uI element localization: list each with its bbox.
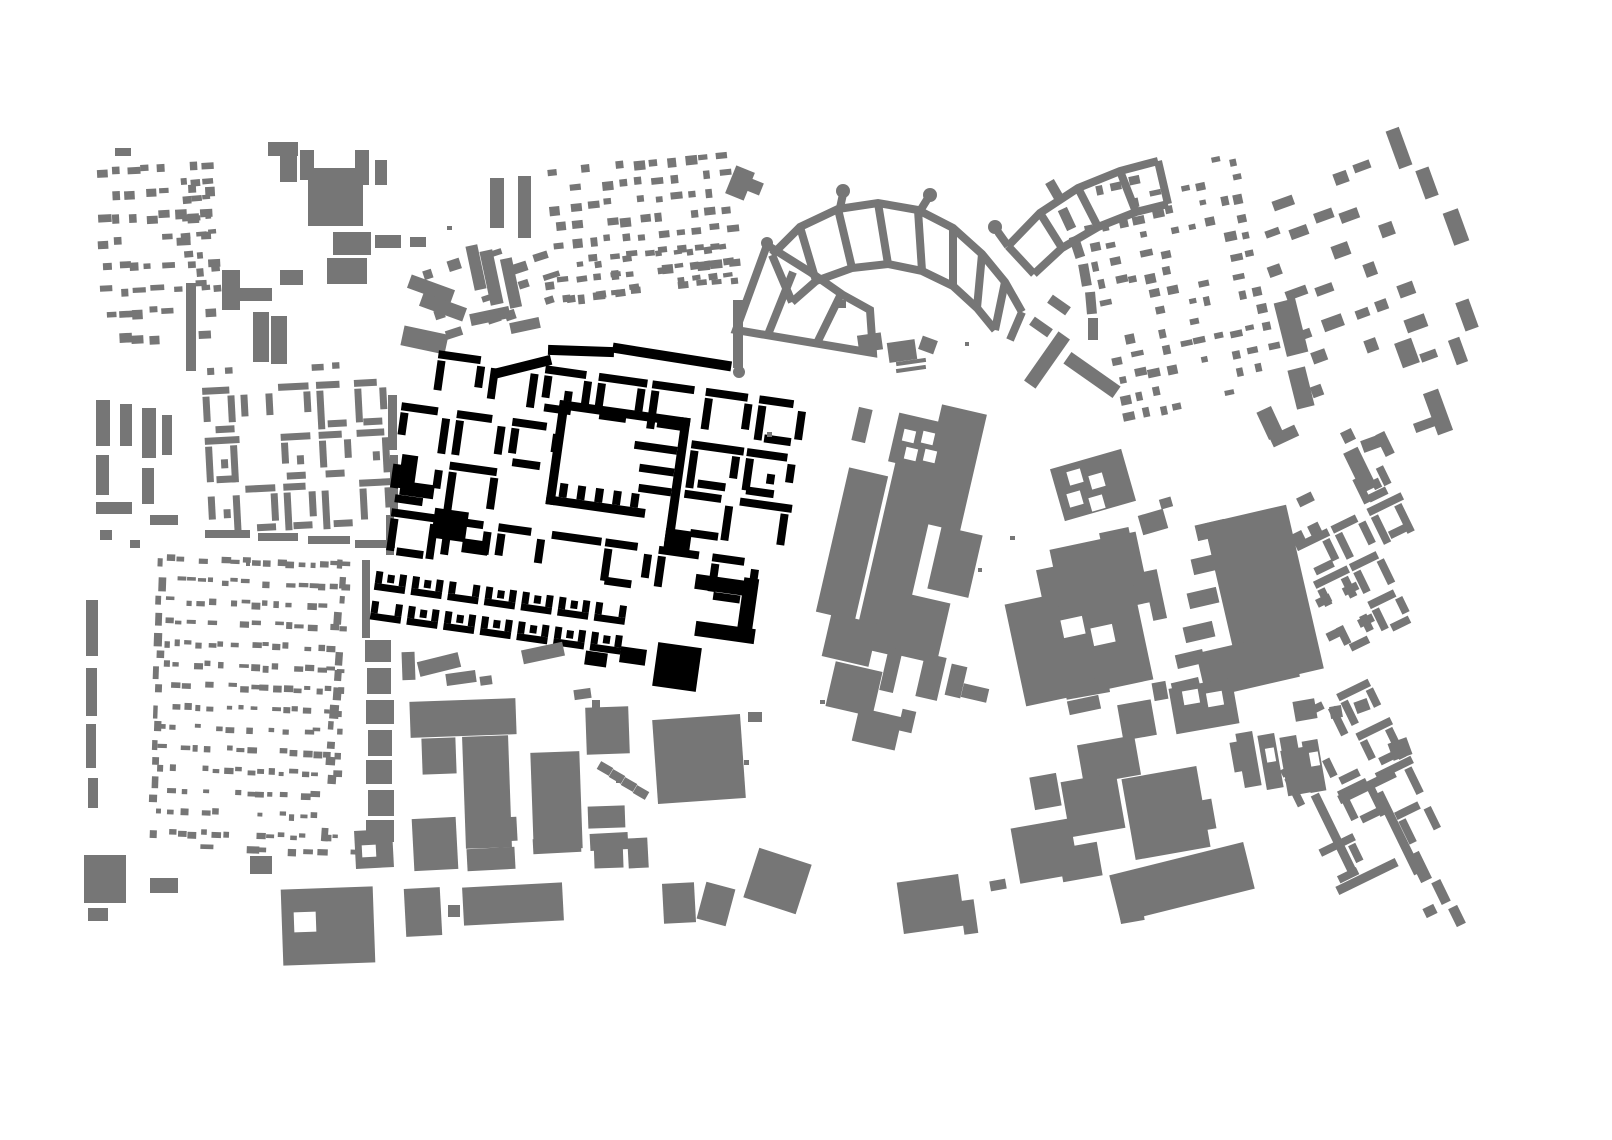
bottom-band-buildings <box>281 817 979 966</box>
allotment-left-edge <box>147 558 168 838</box>
topleft-long-bar <box>186 283 196 371</box>
figure-ground-plan <box>0 0 1612 1140</box>
leftmid-bar-column <box>96 400 178 548</box>
topleft-large-blocks <box>115 142 467 364</box>
topcenter-small-grid <box>545 149 745 306</box>
topright-edge-bits <box>1256 298 1314 447</box>
site-central-courtyard <box>541 400 707 553</box>
mid-small-bits <box>836 300 938 373</box>
site-courts-top-row <box>432 350 807 450</box>
fan-blocks-main <box>772 184 1022 340</box>
site-comb-rows <box>370 571 627 655</box>
site-roof-chevron <box>492 343 732 379</box>
leftmid-courtyard-bars <box>202 378 393 535</box>
farright-top-bars <box>1386 127 1479 436</box>
left-edge-bars <box>84 600 272 921</box>
allotment-bottom-edge <box>200 844 377 859</box>
allotment-field <box>154 554 351 844</box>
figure-ground-map-svg <box>0 0 1612 1140</box>
site-courts-right-mid <box>679 440 800 550</box>
allotment-right-edge <box>318 559 352 841</box>
topleft-housing-column <box>176 176 223 295</box>
slab-band <box>816 404 989 750</box>
topcenter-left-bars <box>465 176 540 334</box>
topleft-housing-rows <box>94 161 225 348</box>
topcenter-speck-rows <box>543 240 737 306</box>
